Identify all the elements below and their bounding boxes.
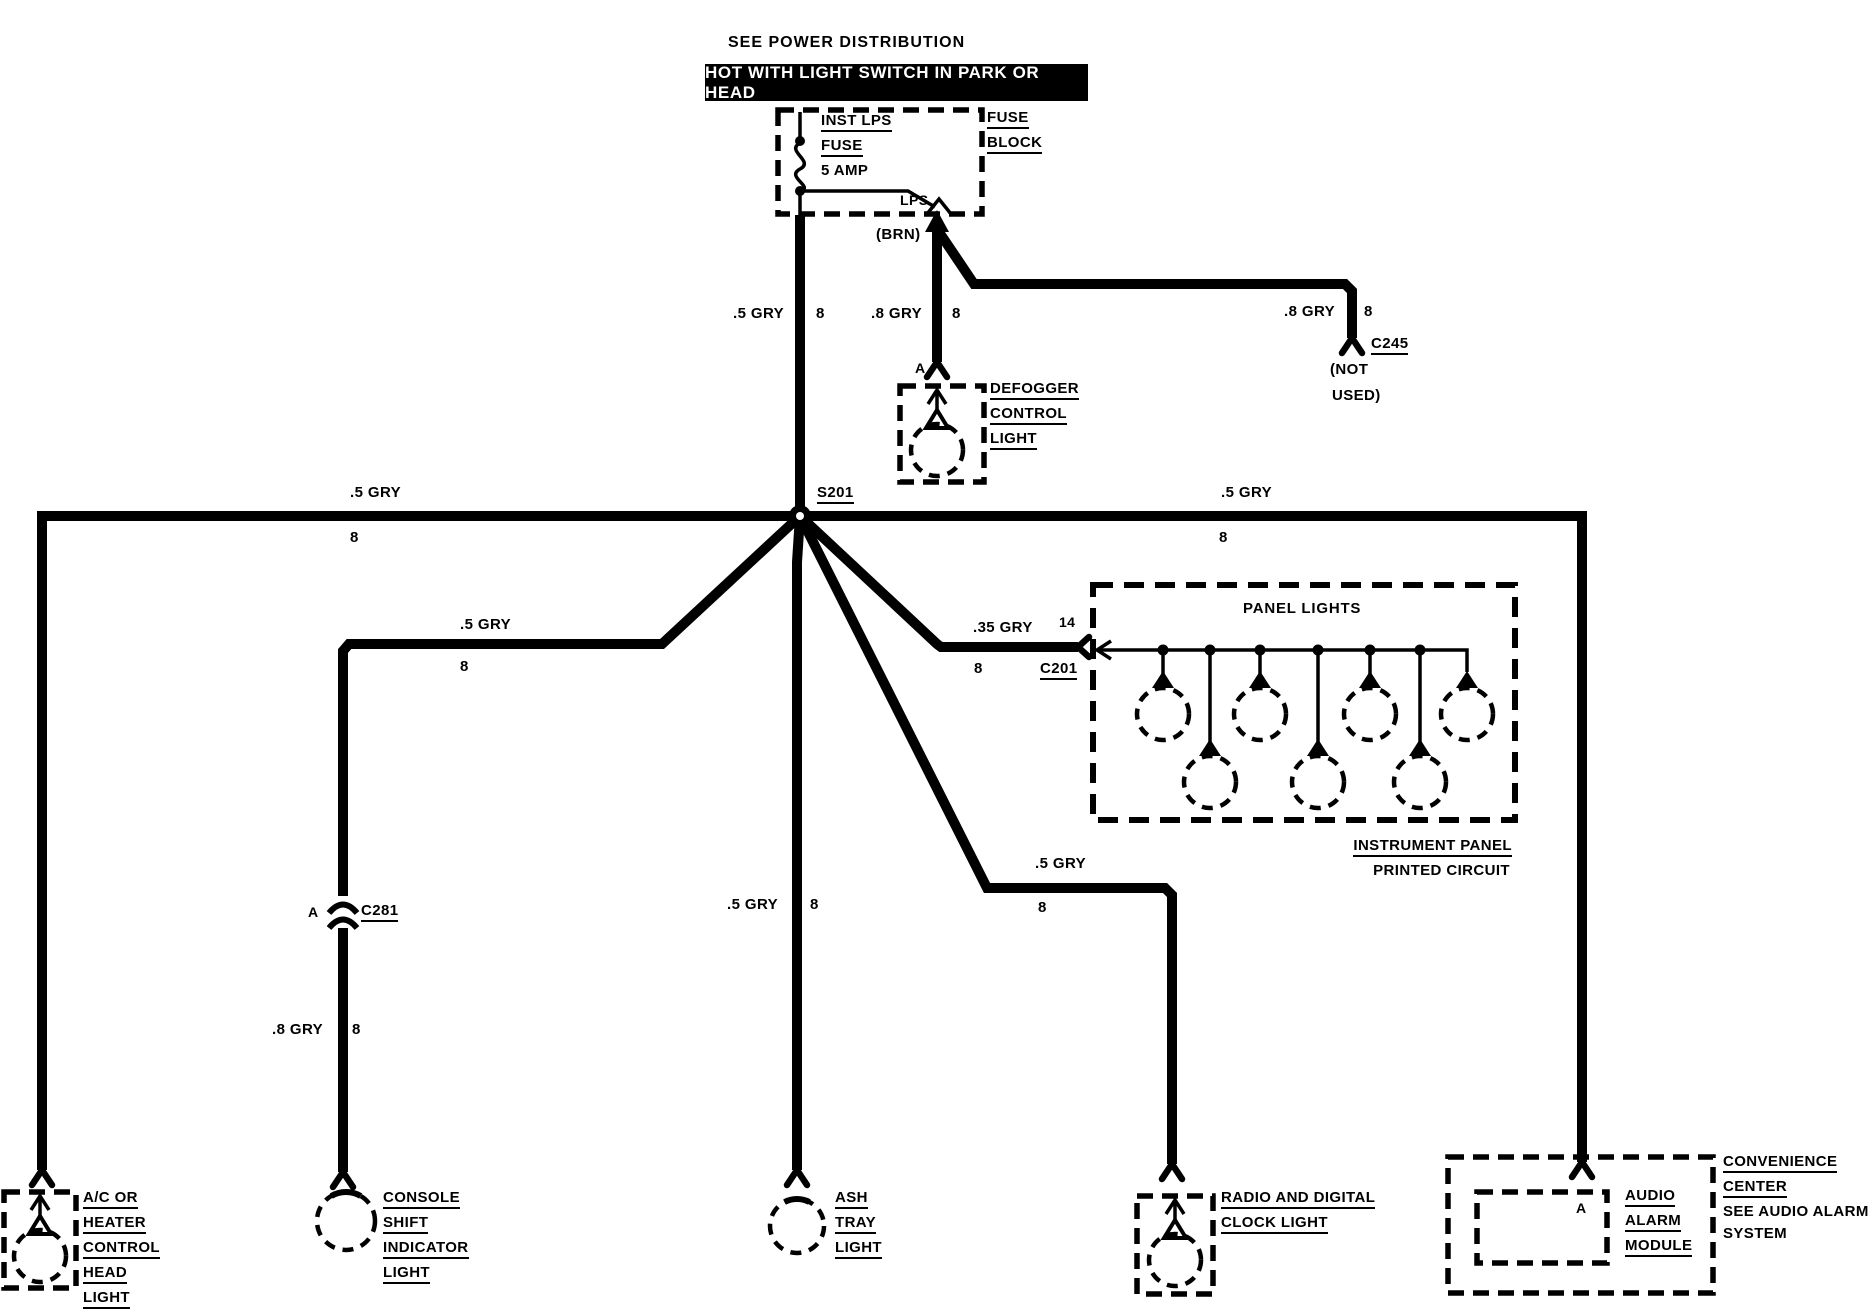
- wire-console-gauge-label: .5 GRY: [460, 617, 511, 633]
- fuse-element-icon: [796, 143, 805, 191]
- ac-light-label-line: A/C OR: [83, 1190, 138, 1209]
- fuse-rating-label: 5 AMP: [821, 163, 868, 179]
- convenience-center-label-line: CONVENIENCE: [1723, 1154, 1837, 1173]
- panel-bus: [1098, 650, 1467, 672]
- radio-bulb-icon: [1149, 1234, 1201, 1286]
- panel-bulb-bases-lower: [1199, 739, 1431, 756]
- wire-radio-circuit-label: 8: [1038, 900, 1047, 916]
- console-light-label: CONSOLE SHIFT INDICATOR LIGHT: [383, 1190, 469, 1290]
- fuse-block-label-line: BLOCK: [987, 135, 1042, 154]
- c201-connector-icon: [1078, 637, 1089, 657]
- ashtray-light-label-line: LIGHT: [835, 1240, 882, 1259]
- audio-alarm-label: AUDIO ALARM MODULE: [1625, 1188, 1692, 1263]
- wire-console-circuit2-label: 8: [352, 1022, 361, 1038]
- wire-ashtray-circuit-label: 8: [810, 897, 819, 913]
- wire-left-bus-circuit-label: 8: [350, 530, 359, 546]
- wire-defogger-gauge-label: .8 GRY: [871, 306, 922, 322]
- brn-wire-color-label: (BRN): [876, 227, 921, 243]
- console-light-label-line: CONSOLE: [383, 1190, 460, 1209]
- instrument-panel-caption-line: PRINTED CIRCUIT: [1373, 863, 1510, 879]
- fuse-name-line: INST LPS: [821, 113, 892, 132]
- console-connector-icon: [333, 1172, 353, 1187]
- wire-main-gauge-label: .5 GRY: [733, 306, 784, 322]
- console-light-label-line: SHIFT: [383, 1215, 428, 1234]
- console-pin-label: A: [308, 904, 319, 920]
- wire-main-circuit-label: 8: [816, 306, 825, 322]
- connector-c281-label: C281: [361, 903, 398, 922]
- wire-ashtray: [797, 516, 800, 1170]
- panel-bus-dot: [1255, 645, 1266, 656]
- connector-c201-label: C201: [1040, 661, 1077, 680]
- panel-bus-dot: [1365, 645, 1376, 656]
- panel-bulb-icon: [1394, 756, 1446, 808]
- wire-ashtray-gauge-label: .5 GRY: [727, 897, 778, 913]
- panel-bulb-icon: [1234, 688, 1286, 740]
- convenience-center-label: CONVENIENCE CENTER SEE AUDIO ALARM SYSTE…: [1723, 1154, 1869, 1248]
- ac-light-label-line: CONTROL: [83, 1240, 160, 1259]
- console-light-label-line: LIGHT: [383, 1265, 430, 1284]
- connector-c245-label: C245: [1371, 336, 1408, 355]
- lps-terminal-label: LPS: [900, 192, 928, 208]
- fuse-name-line: FUSE: [821, 138, 863, 157]
- panel-bulb-icon: [1184, 756, 1236, 808]
- panel-bulb-icon: [1292, 756, 1344, 808]
- panel-lights-symbol: [1093, 585, 1515, 820]
- hot-condition-banner: HOT WITH LIGHT SWITCH IN PARK OR HEAD: [705, 64, 1088, 101]
- panel-bulb-icon: [1441, 688, 1493, 740]
- ashtray-bulb-icon: [770, 1199, 824, 1253]
- ac-light-label-line: LIGHT: [83, 1290, 130, 1309]
- panel-bulb-stems-upper: [1163, 650, 1370, 674]
- ashtray-light-symbol: [770, 1199, 824, 1253]
- wiring-diagram-canvas: [0, 0, 1874, 1312]
- audio-alarm-label-line: ALARM: [1625, 1213, 1681, 1232]
- wire-right-bus-circuit-label: 8: [1219, 530, 1228, 546]
- panel-bus-dot: [1205, 645, 1216, 656]
- splice-s201-label: S201: [817, 485, 854, 504]
- defogger-light-label-line: DEFOGGER: [990, 381, 1079, 400]
- audio-alarm-label-line: AUDIO: [1625, 1188, 1675, 1207]
- console-light-symbol: [317, 1192, 375, 1250]
- audio-alarm-label-line: MODULE: [1625, 1238, 1692, 1257]
- wire-panel-circuit-label: 8: [974, 661, 983, 677]
- panel-bulb-icon: [1344, 688, 1396, 740]
- ashtray-light-label-line: TRAY: [835, 1215, 876, 1234]
- wire-panel: [800, 516, 1078, 647]
- fuse-block-label-line: FUSE: [987, 110, 1029, 129]
- audio-alarm-module-box: [1477, 1192, 1607, 1263]
- wire-console-gauge2-label: .8 GRY: [272, 1022, 323, 1038]
- convenience-center-note-line: SEE AUDIO ALARM: [1723, 1204, 1869, 1220]
- defogger-bulb-icon: [911, 424, 963, 476]
- panel-bulb-bases-upper: [1152, 671, 1478, 688]
- panel-lights-box: [1093, 585, 1515, 820]
- panel-pin-label: 14: [1059, 614, 1075, 630]
- radio-light-label: RADIO AND DIGITAL CLOCK LIGHT: [1221, 1190, 1375, 1240]
- panel-bus-dot: [1415, 645, 1426, 656]
- defogger-light-symbol: [900, 386, 984, 482]
- convenience-center-label-line: CENTER: [1723, 1179, 1787, 1198]
- c245-note-line: USED): [1332, 388, 1381, 404]
- wiring-diagram-page: SEE POWER DISTRIBUTION HOT WITH LIGHT SW…: [0, 0, 1874, 1312]
- ac-bulb-icon: [14, 1230, 66, 1282]
- c281-inline-connector-icon: [329, 905, 357, 929]
- wire-console-upper: [343, 516, 800, 896]
- wire-left-bus-gauge-label: .5 GRY: [350, 485, 401, 501]
- defogger-light-label: DEFOGGER CONTROL LIGHT: [990, 381, 1079, 456]
- panel-bulb-icon: [1137, 688, 1189, 740]
- console-bulb-icon: [317, 1192, 375, 1250]
- wire-c245-gauge-label: .8 GRY: [1284, 304, 1335, 320]
- audio-alarm-pin-label: A: [1576, 1200, 1587, 1216]
- ac-light-symbol: [4, 1192, 76, 1288]
- splice-s201-symbol: [789, 505, 811, 527]
- splice-dot-center: [796, 512, 804, 520]
- defogger-light-label-line: LIGHT: [990, 431, 1037, 450]
- radio-light-label-line: RADIO AND DIGITAL: [1221, 1190, 1375, 1209]
- radio-light-label-line: CLOCK LIGHT: [1221, 1215, 1328, 1234]
- instrument-panel-caption-line: INSTRUMENT PANEL: [1353, 838, 1512, 857]
- wire-radio: [800, 516, 1172, 1164]
- ac-light-label-line: HEATER: [83, 1215, 146, 1234]
- wire-c245-circuit-label: 8: [1364, 304, 1373, 320]
- wire-right-bus-gauge-label: .5 GRY: [1221, 485, 1272, 501]
- fuse-name-label: INST LPS FUSE 5 AMP: [821, 113, 892, 185]
- ashtray-light-label: ASH TRAY LIGHT: [835, 1190, 882, 1265]
- ac-connector-icon: [32, 1170, 52, 1185]
- see-power-distribution-note: SEE POWER DISTRIBUTION: [728, 35, 965, 51]
- panel-bus-dot: [1313, 645, 1324, 656]
- panel-lights-title: PANEL LIGHTS: [1243, 601, 1361, 617]
- c245-note-line: (NOT: [1330, 362, 1368, 378]
- wire-left-bus: [42, 516, 800, 1170]
- radio-connector-icon: [1162, 1164, 1182, 1179]
- wire-radio-gauge-label: .5 GRY: [1035, 856, 1086, 872]
- wire-c245: [939, 232, 1352, 338]
- audio-connector-icon: [1572, 1162, 1592, 1177]
- c245-connector-icon: [1342, 338, 1362, 353]
- radio-light-symbol: [1137, 1196, 1213, 1294]
- defogger-connector-icon: [927, 362, 947, 377]
- fuse-block-label: FUSE BLOCK: [987, 110, 1042, 160]
- connector-terminals: [32, 338, 1592, 1187]
- ac-light-label: A/C OR HEATER CONTROL HEAD LIGHT: [83, 1190, 160, 1312]
- defogger-pin-label: A: [915, 360, 926, 376]
- wire-panel-gauge-label: .35 GRY: [973, 620, 1033, 636]
- console-light-label-line: INDICATOR: [383, 1240, 469, 1259]
- panel-bus-dot: [1158, 645, 1169, 656]
- wire-defogger-circuit-label: 8: [952, 306, 961, 322]
- ac-light-label-line: HEAD: [83, 1265, 127, 1284]
- ashtray-connector-icon: [787, 1170, 807, 1185]
- ashtray-light-label-line: ASH: [835, 1190, 868, 1209]
- wire-console-circuit-label: 8: [460, 659, 469, 675]
- convenience-center-note-line: SYSTEM: [1723, 1226, 1787, 1242]
- defogger-light-label-line: CONTROL: [990, 406, 1067, 425]
